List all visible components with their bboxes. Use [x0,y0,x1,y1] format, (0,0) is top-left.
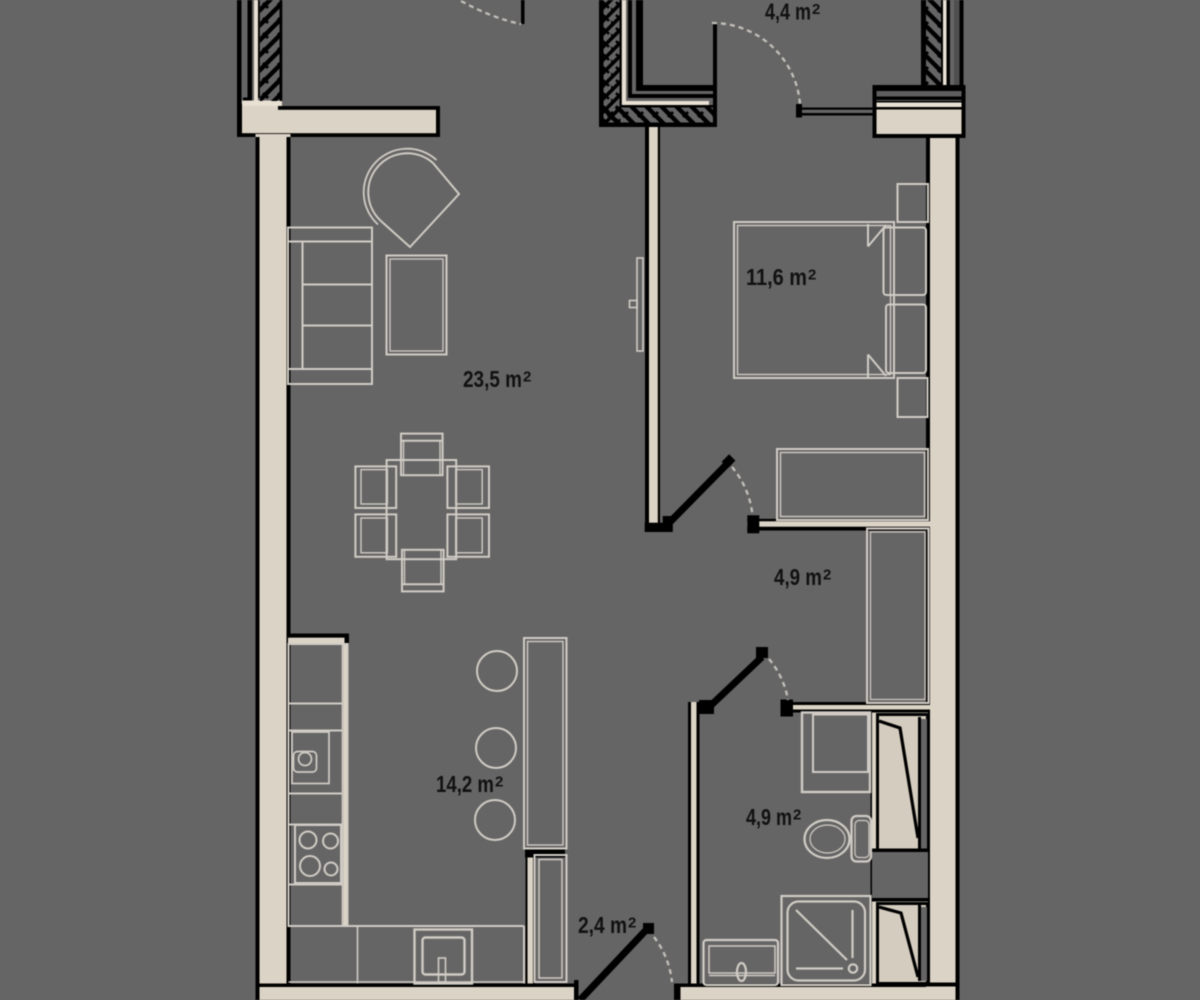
svg-text:2,4 m: 2,4 m [578,912,627,938]
svg-text:2: 2 [823,567,831,584]
svg-text:2: 2 [495,774,503,791]
svg-text:4,4 m: 4,4 m [765,0,811,25]
svg-text:4,9 m: 4,9 m [774,564,822,590]
svg-text:4,9 m: 4,9 m [746,804,792,830]
svg-text:14,2 m: 14,2 m [436,771,494,797]
svg-text:2: 2 [523,369,531,386]
svg-text:2: 2 [628,915,636,932]
svg-text:23,5 m: 23,5 m [463,366,522,392]
svg-text:2: 2 [812,1,820,18]
svg-text:11,6 m: 11,6 m [746,264,807,290]
svg-text:2: 2 [808,267,816,284]
svg-text:2: 2 [793,807,801,824]
